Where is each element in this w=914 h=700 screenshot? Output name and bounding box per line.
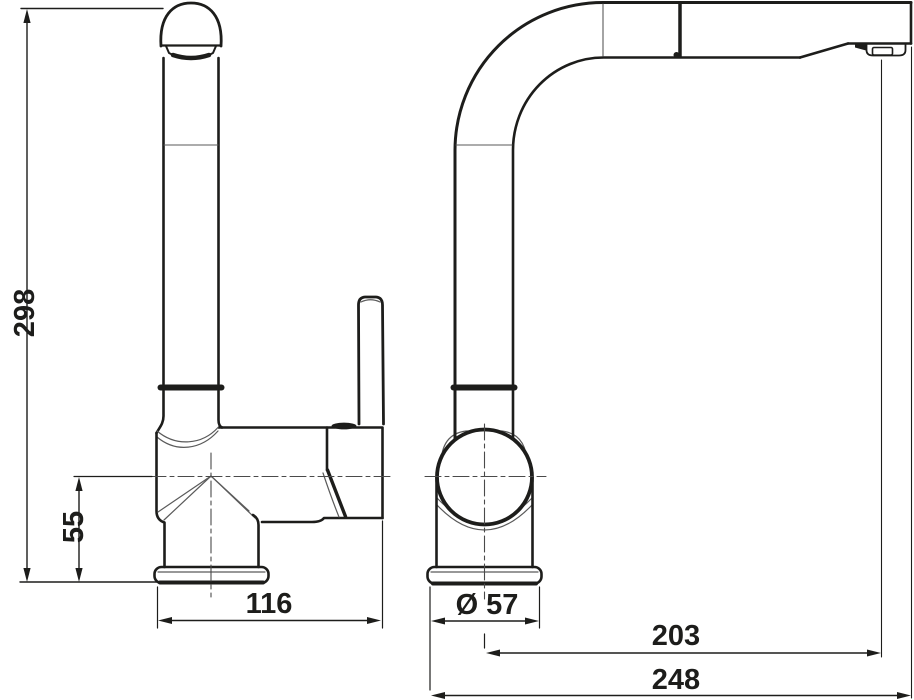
handle-lever [359,297,384,424]
body-cone-line-2 [164,476,211,520]
spray-head-notch [855,44,866,51]
arrow-right [367,617,381,624]
arrow-left [431,618,445,625]
spout-reach-value: 203 [652,620,700,652]
dimension-spout-reach: 203 [485,60,882,657]
overall-height-value: 298 [9,289,41,337]
aerator-outlet-band [173,55,209,58]
spout-axis-height-value: 55 [58,511,90,543]
body-bottom-bridge [262,518,383,522]
technical-drawing-sheet: 298 55 116 [0,0,914,700]
arrow-up [75,477,82,491]
arrow-up [23,9,30,23]
spout-tube-lower-right [219,391,223,428]
arrow-right [867,650,881,657]
body-depth-value: 116 [246,588,293,620]
arrow-down [23,568,30,582]
faucet-dimension-drawing: 298 55 116 [0,0,914,700]
body-cone-line-1 [158,476,211,512]
faucet-side-view [425,3,911,600]
base-diameter-value: Ø 57 [456,589,519,621]
arrow-left [431,692,445,699]
body-saddle-arc-lower [157,431,218,447]
faucet-front-view [150,3,392,597]
arrow-left [158,617,172,624]
dimension-base-to-spout-axis: 55 [58,477,152,583]
body-left-edge [157,433,165,567]
body-right-edge [253,515,259,567]
spray-head-aerator [873,48,893,56]
arrow-right [525,618,539,625]
front-view-dimensions: 298 55 116 [9,9,383,629]
dimension-overall-height: 298 [9,9,163,583]
arm-joint-dot [674,52,680,58]
dimension-body-depth: 116 [158,521,383,628]
handle-junction-shadow [332,423,357,430]
arm-bottom-slant [800,44,848,58]
spout-head-dome [161,3,221,46]
spout-tube-lower-left [157,391,164,433]
handle-lever-top-shade [361,300,380,302]
inner-profile [513,58,800,441]
handle-escutcheon [327,428,383,519]
outer-profile [455,3,911,441]
overall-depth-value: 248 [652,664,700,696]
arrow-right [897,692,911,699]
arrow-left [486,650,500,657]
arrow-down [75,568,82,582]
body-cone-line-4 [211,476,255,518]
